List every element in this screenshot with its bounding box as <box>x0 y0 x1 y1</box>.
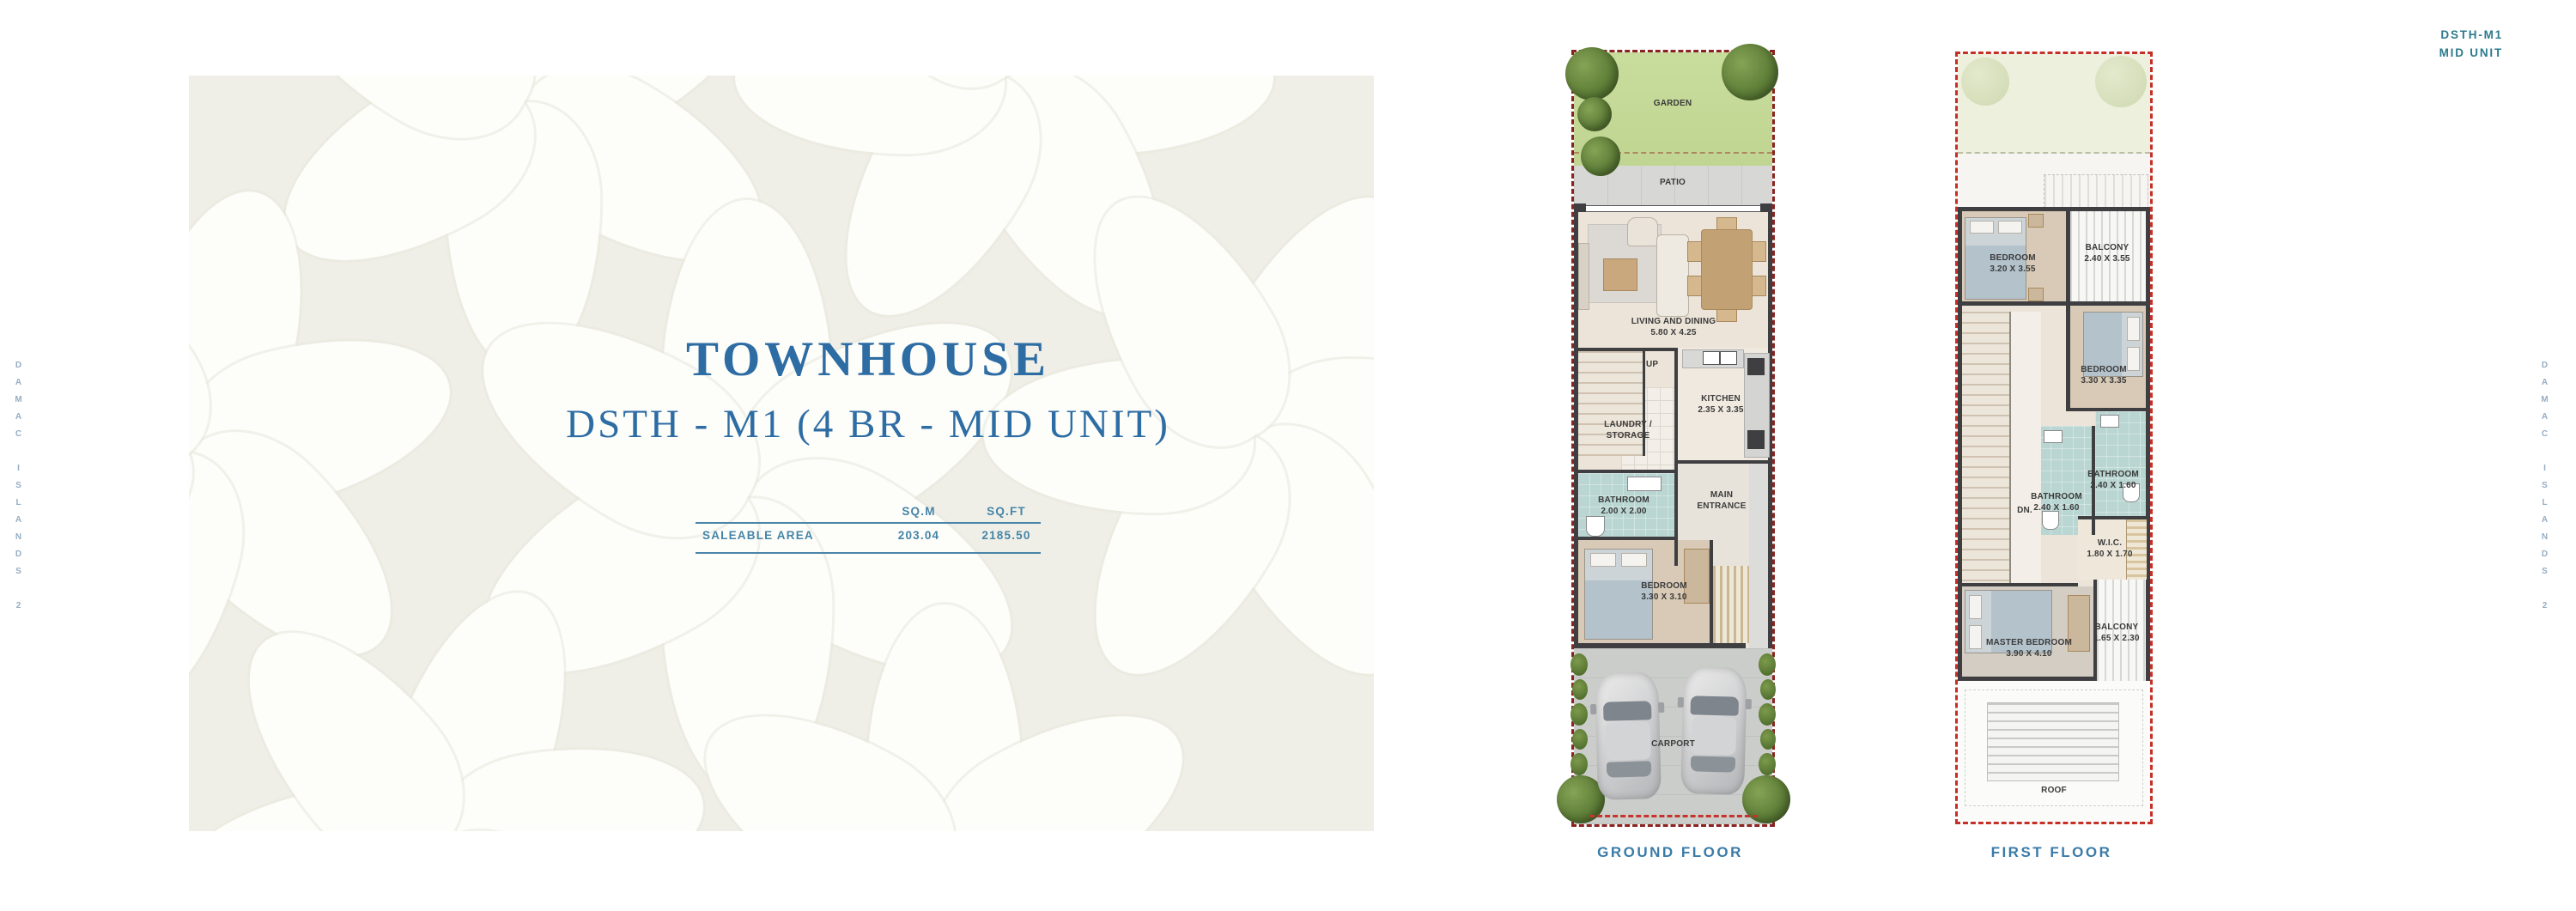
page-title: TOWNHOUSE <box>525 331 1212 387</box>
ground-floor-caption: GROUND FLOOR <box>1533 844 1807 861</box>
shrub <box>1571 653 1588 676</box>
shrub <box>1759 653 1776 676</box>
side-text-right: DAMAC ISLANDS 2 <box>2540 361 2549 644</box>
header-sqm: SQ.M <box>880 505 957 518</box>
kitchen-sink <box>1720 351 1737 365</box>
first-floor-plan: BEDROOM 3.20 X 3.55 BALCONY 2.40 X 3.55 … <box>1955 52 2153 824</box>
patio-label: PATIO <box>1608 178 1737 189</box>
nightstand <box>2028 214 2044 228</box>
dining-chair <box>1687 276 1702 296</box>
stairs-up-label: UP <box>1646 360 1672 371</box>
kitchen-sink <box>1703 351 1720 365</box>
nightstand <box>2028 288 2044 301</box>
shrub <box>1571 703 1588 726</box>
stairs-down <box>1962 312 2009 586</box>
shrub <box>1759 703 1776 726</box>
plot-boundary-dashed-line <box>1589 815 1758 817</box>
dining-table <box>1701 229 1753 310</box>
sofa <box>1656 234 1689 317</box>
entry-doormat <box>1713 566 1749 643</box>
car <box>1595 671 1662 800</box>
car <box>1680 666 1747 795</box>
balcony2-label: BALCONY 1.65 X 2.30 <box>2077 623 2156 644</box>
bedroom1-label: BEDROOM 3.20 X 3.55 <box>1962 253 2063 275</box>
coffee-table <box>1603 258 1637 291</box>
bathroom-sink <box>2044 430 2063 443</box>
flower-pattern <box>704 634 1185 831</box>
living-dining-label: LIVING AND DINING 5.80 X 4.25 <box>1588 317 1759 338</box>
area-table-data-row: SALEABLE AREA 203.04 2185.50 <box>696 524 1041 554</box>
shrub <box>1760 679 1776 700</box>
saleable-area-table: SQ.M SQ.FT SALEABLE AREA 203.04 2185.50 <box>696 500 1041 554</box>
balcony1-label: BALCONY 2.40 X 3.55 <box>2068 243 2147 264</box>
tree <box>1581 137 1620 176</box>
brochure-page: { "page": { "side_text": "DAMAC ISLANDS … <box>0 0 2576 911</box>
page-subtitle: DSTH - M1 (4 BR - MID UNIT) <box>525 401 1212 447</box>
tree-faded <box>2095 56 2147 107</box>
toilet <box>1586 516 1605 537</box>
row-sqft-value: 2185.50 <box>968 529 1045 542</box>
bathroom-sink <box>1627 477 1662 491</box>
bathroom-sink <box>2100 415 2119 428</box>
dining-chair <box>1716 217 1737 230</box>
balcony-projection-faded <box>2044 174 2148 209</box>
bathroom-label: BATHROOM 2.00 X 2.00 <box>1576 495 1672 517</box>
garden-label: GARDEN <box>1608 99 1737 110</box>
master-bedroom-label: MASTER BEDROOM 3.90 X 4.10 <box>1965 638 2093 659</box>
dining-chair <box>1752 276 1766 296</box>
shrub <box>1572 679 1588 700</box>
console-bench <box>1578 243 1589 310</box>
bathroom1-label: BATHROOM 2.40 X 1.60 <box>2005 492 2108 513</box>
armchair <box>1627 217 1658 246</box>
bathroom2-label: BATHROOM 2.40 X 1.60 <box>2074 470 2153 491</box>
toilet <box>2042 511 2059 530</box>
kitchen-appliance <box>1747 430 1765 449</box>
header-sqft: SQ.FT <box>968 505 1045 518</box>
roof-pergola-slats <box>1987 702 2119 781</box>
dining-chair <box>1752 241 1766 262</box>
kitchen-appliance <box>1747 358 1765 375</box>
unit-tag: DSTH-M1 MID UNIT <box>2439 26 2503 62</box>
carport-label: CARPORT <box>1574 739 1772 750</box>
sliding-door <box>1583 205 1765 212</box>
laundry-storage-label: LAUNDRY / STORAGE <box>1581 420 1675 441</box>
dining-chair <box>1687 241 1702 262</box>
unit-tag-line1: DSTH-M1 <box>2439 26 2503 44</box>
wic-label: W.I.C. 1.80 X 1.70 <box>2069 538 2150 560</box>
first-floor-caption: FIRST FLOOR <box>1914 844 2189 861</box>
row-sqm-value: 203.04 <box>880 529 957 542</box>
flower-pattern <box>197 608 678 831</box>
bedroom2-label: BEDROOM 3.30 X 3.35 <box>2059 365 2148 386</box>
tree <box>1565 47 1619 100</box>
stair-landing <box>2009 312 2041 586</box>
shrub <box>1571 753 1588 775</box>
roof-label: ROOF <box>1958 786 2150 797</box>
tree <box>1722 44 1778 100</box>
kitchen-label: KITCHEN 2.35 X 3.35 <box>1678 394 1764 416</box>
shrub <box>1759 753 1776 775</box>
main-entrance-label: MAIN ENTRANCE <box>1675 490 1768 512</box>
cream-pattern-panel <box>189 76 1374 831</box>
row-label: SALEABLE AREA <box>702 529 814 542</box>
unit-tag-line2: MID UNIT <box>2439 44 2503 62</box>
bedroom-label: BEDROOM 3.30 X 3.10 <box>1608 581 1720 603</box>
tree <box>1577 97 1612 131</box>
side-text-left: DAMAC ISLANDS 2 <box>14 361 23 644</box>
tree-faded <box>1961 58 2009 106</box>
area-table-header-row: SQ.M SQ.FT <box>696 500 1041 524</box>
ground-floor-plan: GARDEN PATIO LIVING AND DINING 5.80 X 4.… <box>1571 50 1775 827</box>
